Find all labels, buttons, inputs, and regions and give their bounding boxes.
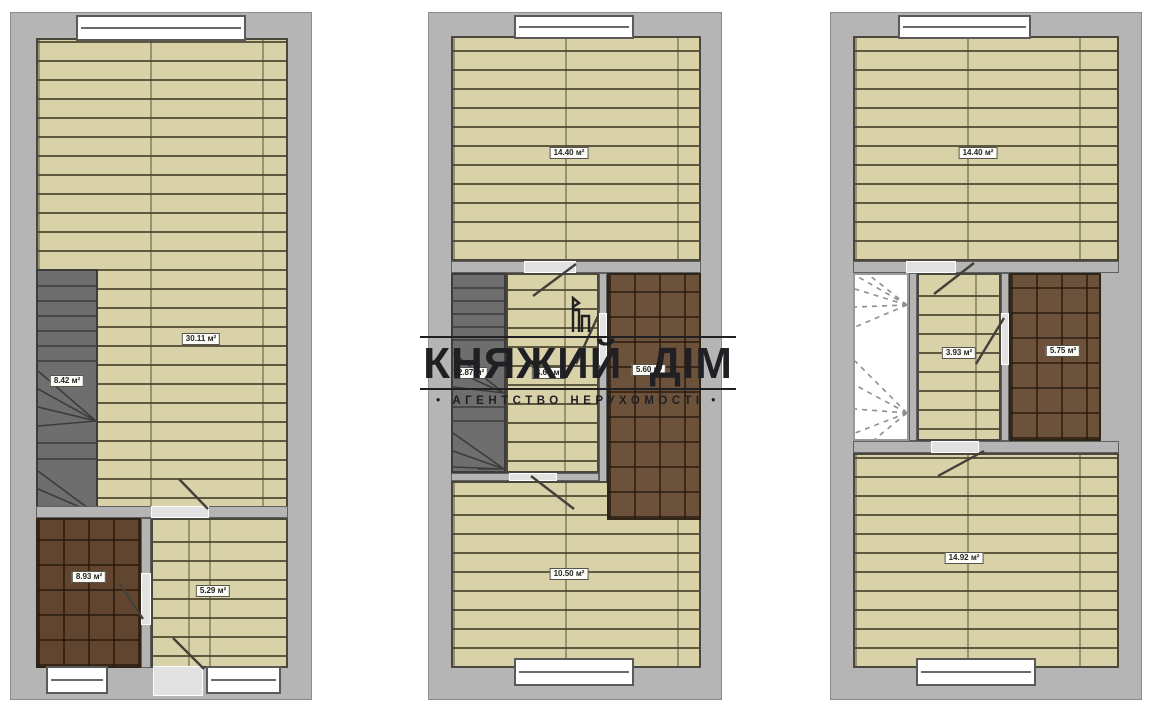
room-area-label: 14.92 м² <box>945 552 984 564</box>
door-opening <box>906 261 956 273</box>
window <box>46 666 108 694</box>
interior-wall <box>853 261 1119 273</box>
window <box>206 666 281 694</box>
entrance-door-opening <box>153 666 203 696</box>
watermark-rule-top <box>420 336 736 338</box>
door-opening <box>931 441 979 453</box>
watermark-rule-bottom <box>420 388 736 390</box>
window <box>898 15 1031 39</box>
stairwell-void <box>853 273 909 441</box>
door-opening <box>141 573 151 625</box>
room-area-label: 14.40 м² <box>550 147 589 159</box>
third-floor-plan: 14.40 м² 3.93 м² 5.75 м² 14.92 м² <box>830 12 1142 700</box>
room-area-label: 30.11 м² <box>182 333 220 345</box>
bathroom-floor <box>36 518 141 668</box>
interior-wall <box>451 261 701 273</box>
door-opening <box>524 261 576 273</box>
bathroom-floor <box>1009 273 1101 441</box>
void-hatch-icon <box>855 275 907 439</box>
window <box>916 658 1036 686</box>
first-floor-plan: 30.11 м² 8.42 м² 8.93 м² 5.29 м² <box>10 12 312 700</box>
room-area-label: 14.40 м² <box>959 147 998 159</box>
interior-wall <box>909 273 917 441</box>
room-area-label: 5.29 м² <box>196 585 230 597</box>
room-area-label: 3.93 м² <box>942 347 976 359</box>
bedroom-bottom-floor <box>853 453 1119 668</box>
agency-tagline: • АГЕНТСТВО НЕРУХОМОСТІ • <box>420 395 736 407</box>
room-area-label: 10.50 м² <box>550 568 589 580</box>
room-area-label: 8.42 м² <box>50 375 84 387</box>
window <box>76 15 246 41</box>
castle-tower-icon <box>561 296 595 334</box>
window <box>514 15 634 39</box>
room-area-label: 5.75 м² <box>1046 345 1080 357</box>
agency-name: КНЯЖИЙ ДІМ <box>420 339 736 388</box>
agency-watermark: КНЯЖИЙ ДІМ • АГЕНТСТВО НЕРУХОМОСТІ • <box>420 296 736 407</box>
floor-plans-sheet: 30.11 м² 8.42 м² 8.93 м² 5.29 м² <box>0 0 1150 712</box>
window <box>514 658 634 686</box>
door-opening <box>1001 313 1009 365</box>
stair-treads-icon <box>38 271 96 516</box>
interior-wall <box>853 441 1119 453</box>
staircase <box>36 269 98 518</box>
room-area-label: 8.93 м² <box>72 571 106 583</box>
door-opening <box>151 506 209 518</box>
door-opening <box>509 473 557 481</box>
